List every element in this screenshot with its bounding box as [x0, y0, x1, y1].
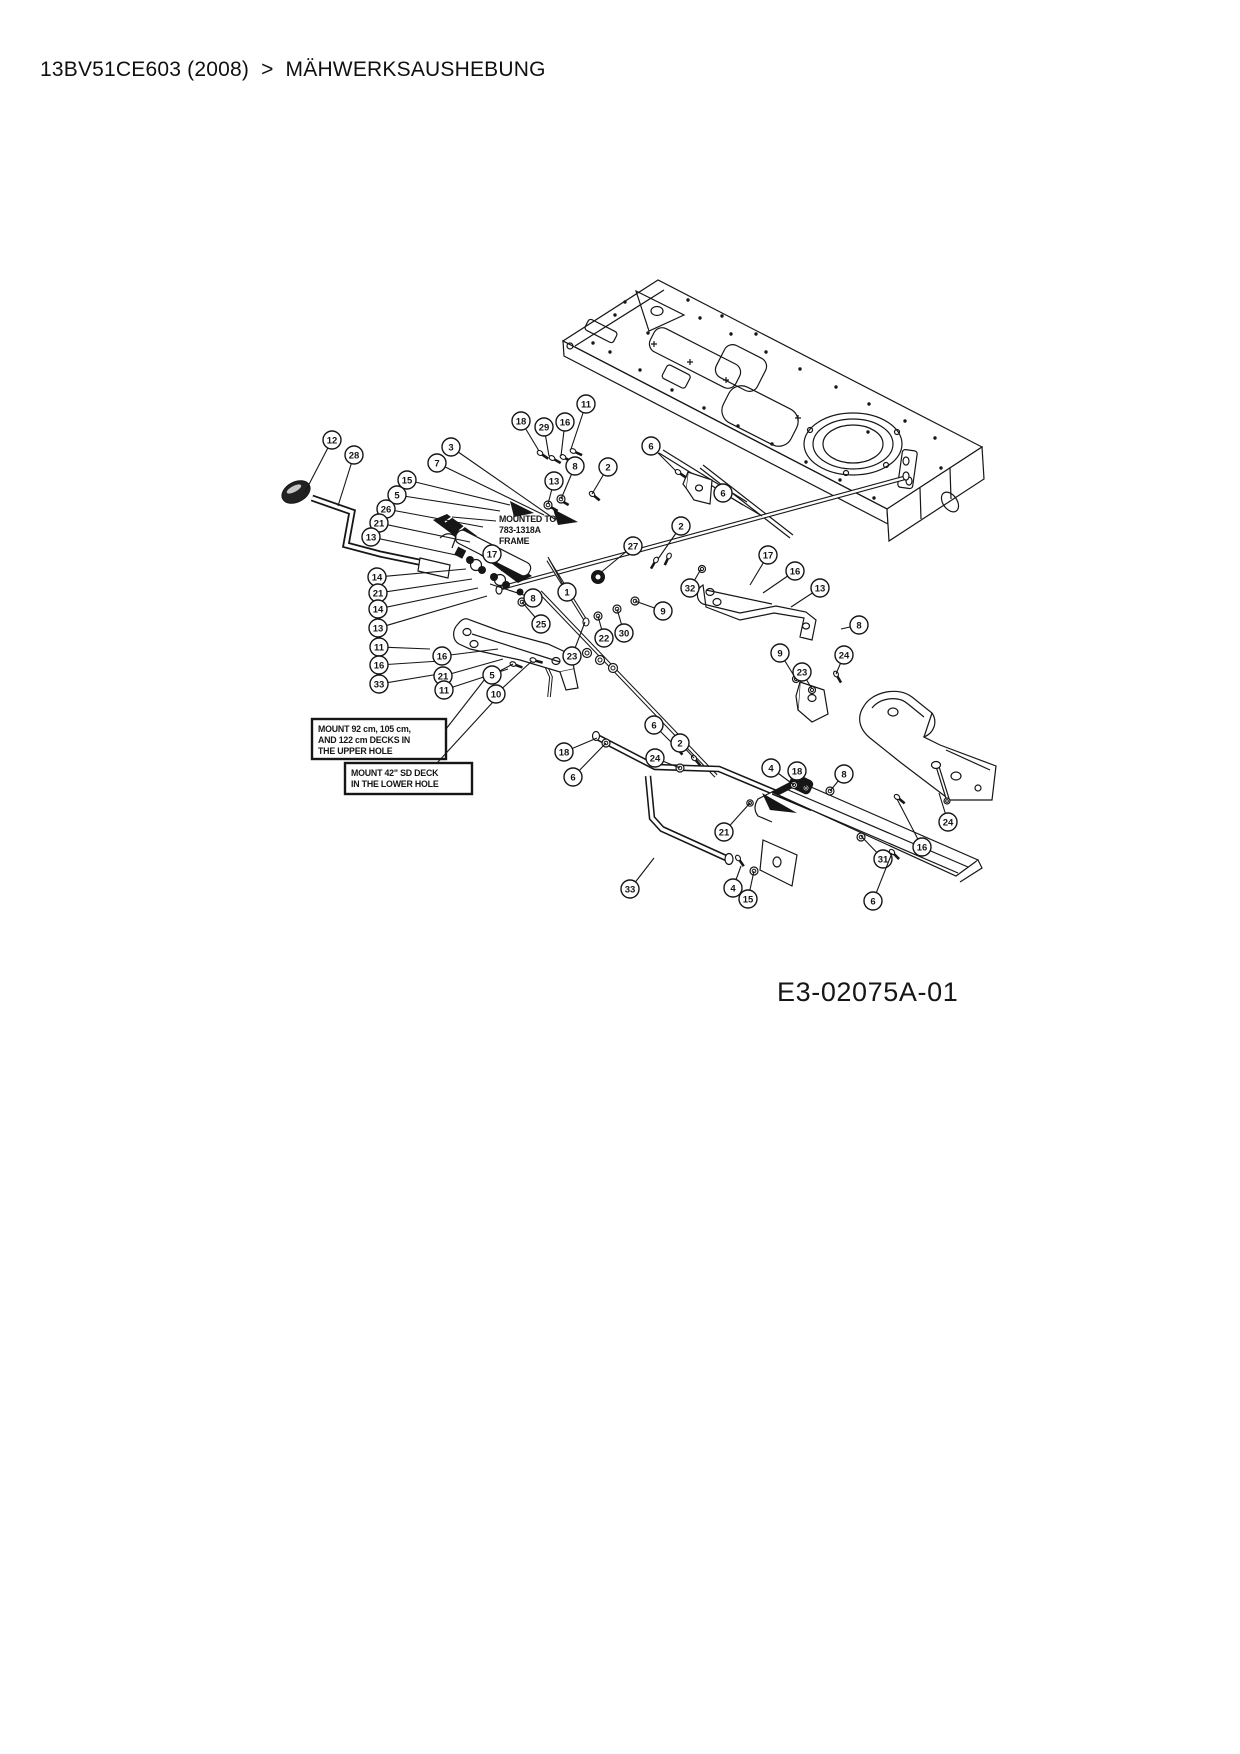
svg-text:24: 24	[839, 650, 850, 661]
svg-text:3: 3	[448, 442, 453, 453]
svg-text:21: 21	[373, 588, 384, 599]
svg-text:30: 30	[619, 628, 630, 639]
tractor-frame-part	[563, 280, 984, 541]
callout-4: 4	[724, 866, 742, 897]
svg-text:8: 8	[530, 593, 535, 604]
svg-text:12: 12	[327, 435, 338, 446]
svg-text:16: 16	[374, 660, 385, 671]
callout-11: 11	[370, 638, 430, 656]
svg-text:21: 21	[719, 827, 730, 838]
svg-text:11: 11	[439, 685, 450, 696]
callout-8: 8	[841, 616, 868, 634]
screw-part	[536, 449, 548, 458]
svg-text:13: 13	[373, 623, 384, 634]
svg-text:23: 23	[797, 667, 808, 678]
lift-lever-part	[278, 476, 433, 565]
svg-text:27: 27	[628, 541, 639, 552]
figure-label: E3-02075A-01	[777, 977, 958, 1007]
svg-text:8: 8	[572, 461, 577, 472]
svg-text:2: 2	[605, 462, 610, 473]
svg-text:24: 24	[650, 753, 661, 764]
callout-8: 8	[830, 765, 853, 791]
svg-text:15: 15	[743, 894, 754, 905]
callout-33: 33	[621, 858, 654, 898]
svg-text:4: 4	[768, 763, 774, 774]
callout-16: 16	[433, 647, 498, 665]
washer-part	[609, 664, 618, 673]
washer-part	[583, 649, 592, 658]
svg-text:26: 26	[381, 504, 392, 515]
callout-32: 32	[681, 569, 701, 597]
washer-part	[857, 833, 865, 841]
svg-text:33: 33	[374, 679, 385, 690]
svg-text:8: 8	[856, 620, 861, 631]
svg-text:24: 24	[943, 817, 954, 828]
svg-text:18: 18	[792, 766, 803, 777]
washer-part	[596, 656, 605, 665]
svg-text:15: 15	[402, 475, 413, 486]
svg-text:22: 22	[599, 633, 610, 644]
svg-text:5: 5	[489, 670, 495, 681]
svg-text:6: 6	[870, 896, 875, 907]
washer-part	[944, 798, 950, 804]
svg-text:4: 4	[730, 883, 736, 894]
callout-17: 17	[483, 545, 502, 571]
svg-text:13: 13	[366, 532, 377, 543]
svg-text:17: 17	[763, 550, 774, 561]
callout-1: 1	[548, 557, 576, 601]
note-text: MOUNT 42" SD DECKIN THE LOWER HOLE	[351, 768, 439, 789]
frame-support-bracket-part	[683, 472, 712, 504]
callout-14: 14	[368, 568, 466, 586]
svg-text:14: 14	[372, 572, 383, 583]
exploded-view-diagram: MOUNTED TO783-1318AFRAMEMOUNT 92 cm, 105…	[0, 0, 1240, 1754]
callout-7: 7	[428, 454, 544, 515]
svg-text:2: 2	[677, 738, 682, 749]
svg-text:16: 16	[437, 651, 448, 662]
callout-18: 18	[512, 412, 539, 451]
callout-5: 5	[483, 664, 513, 684]
svg-text:13: 13	[549, 476, 560, 487]
svg-text:18: 18	[516, 416, 527, 427]
washer-part	[809, 687, 816, 694]
lift-shaft-part	[593, 732, 813, 865]
svg-text:9: 9	[660, 606, 665, 617]
svg-text:16: 16	[790, 566, 801, 577]
svg-text:11: 11	[374, 642, 385, 653]
callout-13: 13	[791, 579, 829, 607]
callout-9: 9	[771, 644, 796, 679]
svg-text:32: 32	[685, 583, 696, 594]
svg-text:16: 16	[560, 417, 571, 428]
callout-6: 6	[714, 484, 762, 516]
svg-text:28: 28	[349, 450, 360, 461]
callout-16: 16	[370, 656, 440, 674]
callout-26: 26	[377, 500, 483, 527]
screw-part	[734, 854, 743, 866]
svg-text:7: 7	[434, 458, 439, 469]
callout-17: 17	[750, 546, 777, 585]
svg-text:21: 21	[374, 518, 385, 529]
svg-text:8: 8	[841, 769, 846, 780]
svg-text:5: 5	[394, 490, 400, 501]
screw-part	[588, 490, 599, 500]
callout-6: 6	[642, 437, 676, 471]
callout-24: 24	[835, 646, 853, 674]
svg-text:11: 11	[581, 399, 592, 410]
screw-part	[548, 455, 560, 463]
pivot-bar-bracket-part	[697, 585, 816, 640]
svg-text:16: 16	[917, 842, 928, 853]
svg-text:6: 6	[720, 488, 725, 499]
callout-21: 21	[715, 803, 750, 841]
svg-text:23: 23	[567, 651, 578, 662]
screw-part	[665, 552, 672, 565]
svg-text:17: 17	[487, 549, 498, 560]
screw-part	[674, 468, 686, 477]
screw-part	[509, 661, 522, 668]
callout-16: 16	[763, 562, 804, 593]
callout-28: 28	[338, 446, 363, 506]
lift-arm-bracket-part	[860, 691, 996, 800]
callout-2: 2	[592, 458, 617, 494]
svg-text:6: 6	[651, 720, 656, 731]
svg-text:1: 1	[564, 587, 570, 598]
svg-text:9: 9	[777, 648, 782, 659]
deck-mount-bracket-part	[454, 619, 578, 690]
svg-text:25: 25	[536, 619, 547, 630]
callout-30: 30	[615, 609, 633, 642]
svg-text:6: 6	[648, 441, 653, 452]
svg-text:2: 2	[678, 521, 683, 532]
callout-9: 9	[635, 601, 672, 620]
svg-text:10: 10	[491, 689, 502, 700]
svg-text:14: 14	[373, 604, 384, 615]
note-text: MOUNTED TO783-1318AFRAME	[499, 514, 556, 546]
callout-8: 8	[561, 457, 584, 499]
callout-22: 22	[595, 616, 613, 647]
callout-18: 18	[555, 738, 597, 761]
svg-text:13: 13	[815, 583, 826, 594]
svg-text:29: 29	[539, 422, 550, 433]
svg-text:33: 33	[625, 884, 636, 895]
svg-text:18: 18	[559, 747, 570, 758]
svg-text:6: 6	[570, 772, 575, 783]
callout-12: 12	[305, 431, 341, 492]
